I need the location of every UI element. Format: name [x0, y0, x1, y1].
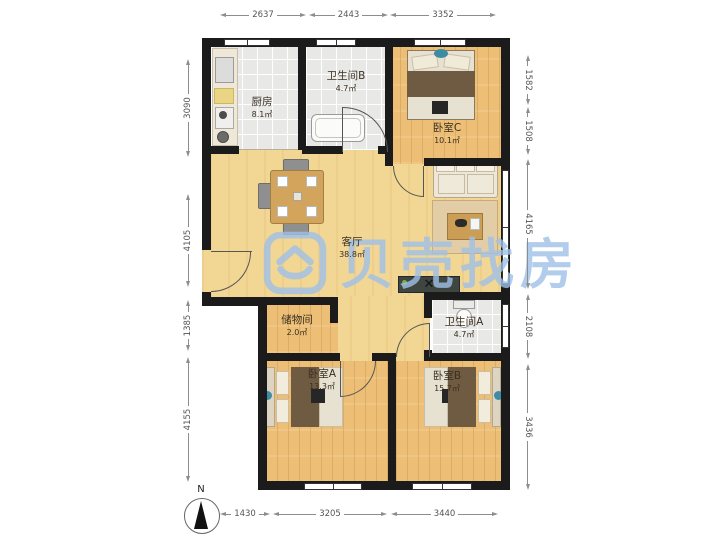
dim-left-2-value: 4105 [183, 227, 193, 255]
toilet-tank [453, 300, 475, 309]
bathroom-b-area: 4.7㎡ [327, 84, 366, 94]
dim-right-5: 3436 [522, 364, 534, 490]
bedroom-b-name: 卧室B [433, 370, 461, 384]
storage-label: 储物间 2.0㎡ [281, 314, 313, 338]
bathroom-a-label: 卫生间A 4.7㎡ [445, 316, 484, 340]
wall-bathroom-b-bottom-left [302, 146, 343, 154]
bedroom-c-laptop [432, 101, 448, 114]
bedroom-c-label: 卧室C 10.1㎡ [433, 122, 461, 146]
sofa-seat-2 [467, 174, 494, 194]
dim-right-2-value: 1508 [523, 117, 533, 145]
dim-right-3: 4165 [522, 159, 534, 289]
wall-outer-left-upper [202, 38, 211, 250]
bedroom-a-window [304, 483, 362, 490]
dim-right-4-value: 2108 [523, 313, 533, 341]
dim-right-5-value: 3436 [523, 413, 533, 441]
coffee-table-tray [470, 218, 480, 230]
dining-plate-4 [306, 206, 317, 217]
wall-kitchen-right [298, 46, 306, 150]
bedroom-b-pillow-top [478, 371, 491, 395]
dim-top-3: 3352 [390, 9, 496, 21]
bathroom-a-area: 4.7㎡ [445, 330, 484, 340]
bedroom-a-name: 卧室A [308, 368, 336, 382]
dim-right-4: 2108 [522, 294, 534, 359]
bathroom-b-window [316, 39, 356, 46]
dining-plate-3 [277, 206, 288, 217]
bedroom-b-door-leaf [429, 323, 430, 357]
bedroom-a-pillow-top [276, 371, 289, 395]
living-room-label: 客厅 38.8㎡ [339, 236, 365, 260]
kitchen-label: 厨房 8.1㎡ [252, 96, 273, 120]
dim-left-4-value: 4155 [183, 406, 193, 434]
kitchen-sink [215, 57, 234, 83]
kitchen-name: 厨房 [252, 96, 273, 110]
watermark-text: 贝壳找房 [340, 238, 580, 292]
bedroom-a-label: 卧室A 13.3㎡ [308, 368, 336, 392]
dim-right-3-value: 4165 [523, 210, 533, 238]
bedroom-b-label: 卧室B 15.7㎡ [433, 370, 461, 394]
wall-storage-right-upper [330, 297, 338, 323]
bedroom-c-window [414, 39, 466, 46]
bedroom-b-pillow-bottom [478, 399, 491, 423]
dim-left-4: 4155 [182, 357, 194, 482]
dim-top-2-value: 2443 [335, 10, 363, 20]
dining-plate-2 [306, 176, 317, 187]
kitchen-window [224, 39, 270, 46]
beike-logo-icon [262, 230, 328, 300]
bathroom-b-name: 卫生间B [327, 70, 366, 84]
dim-top-2: 2443 [309, 9, 388, 21]
entry-door-leaf [211, 251, 252, 252]
bedroom-b-window [412, 483, 472, 490]
dim-left-3-value: 1385 [183, 312, 193, 340]
kitchen-area: 8.1㎡ [252, 110, 273, 120]
living-room-name: 客厅 [339, 236, 365, 250]
kitchen-open-edge [239, 149, 302, 150]
dim-bottom-3: 3440 [391, 508, 498, 520]
wall-bedroom-divider [388, 353, 396, 489]
dim-bottom-3-value: 3440 [431, 509, 459, 519]
wall-kitchen-bottom-stub [204, 146, 239, 154]
living-room-area: 38.8㎡ [339, 250, 365, 260]
dim-right-2: 1508 [522, 107, 534, 155]
bedroom-c-door-leaf [423, 166, 424, 197]
storage-area: 2.0㎡ [281, 328, 313, 338]
bedroom-c-area: 10.1㎡ [433, 136, 461, 146]
sofa-seat-1 [438, 174, 465, 194]
dim-right-1: 1582 [522, 55, 534, 105]
kitchen-burner [219, 111, 227, 119]
wall-bedroom-c-bottom [424, 158, 501, 166]
bathroom-b-label: 卫生间B 4.7㎡ [327, 70, 366, 94]
dim-left-3: 1385 [182, 300, 194, 351]
bedroom-c-duvet [407, 71, 475, 97]
dim-bottom-2: 3205 [273, 508, 387, 520]
storage-door-threshold [330, 323, 338, 353]
bathroom-b-door-leaf [342, 107, 343, 152]
dim-top-1-value: 2637 [249, 10, 277, 20]
dining-centerpiece [293, 192, 302, 201]
dim-left-1-value: 3090 [183, 94, 193, 122]
wall-outer-bottom [258, 481, 510, 490]
storage-name: 储物间 [281, 314, 313, 328]
dim-left-1: 3090 [182, 59, 194, 157]
bathroom-a-name: 卫生间A [445, 316, 484, 330]
kitchen-cooker [217, 131, 229, 143]
bedroom-b-area: 15.7㎡ [433, 384, 461, 394]
kitchen-mat [214, 88, 234, 104]
bedroom-c-name: 卧室C [433, 122, 461, 136]
dim-bottom-1-value: 1430 [231, 509, 259, 519]
bedroom-a-door-leaf [340, 361, 341, 397]
wall-bedroom-b-top [430, 353, 508, 361]
wall-bedroom-a-top-left [266, 353, 340, 361]
north-label: N [197, 484, 204, 495]
dim-right-1-value: 1582 [523, 66, 533, 94]
dim-left-2: 4105 [182, 194, 194, 287]
bathroom-a-window [502, 304, 509, 348]
wall-outer-left-lower [258, 297, 267, 490]
dining-plate-1 [277, 176, 288, 187]
wall-lowleft-horizontal [202, 297, 266, 306]
bedroom-c-lamp [434, 49, 448, 58]
north-arrow-icon [194, 501, 208, 529]
dim-top-1: 2637 [220, 9, 306, 21]
dim-bottom-2-value: 3205 [316, 509, 344, 519]
dim-bottom-1: 1430 [220, 508, 270, 520]
bedroom-a-pillow-bottom [276, 399, 289, 423]
coffee-table-decor [455, 219, 467, 227]
floor-plan: ✕ 厨房 8.1㎡ 卫生间B 4.7㎡ 卧室C 10.1㎡ 客厅 38.8㎡ 储… [0, 0, 720, 540]
dim-top-3-value: 3352 [429, 10, 457, 20]
bedroom-a-area: 13.3㎡ [308, 382, 336, 392]
